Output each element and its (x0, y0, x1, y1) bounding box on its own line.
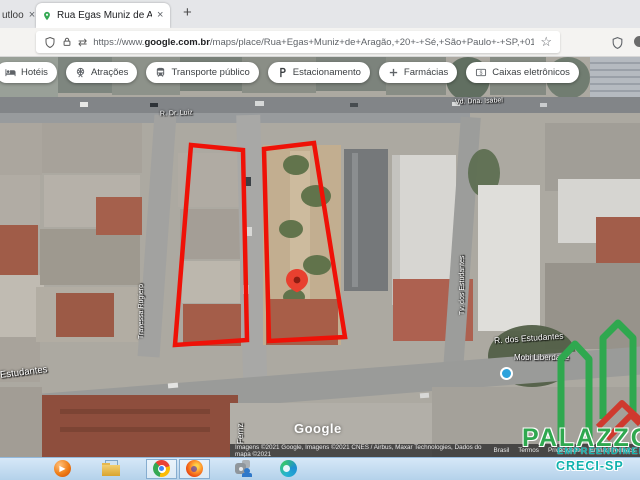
maps-pin-favicon (42, 10, 52, 22)
parking-p-icon (277, 67, 288, 78)
street-label: Travessa Rugiero (138, 243, 145, 339)
chip-pharmacies[interactable]: Farmácias (379, 62, 457, 83)
bookmark-star-icon[interactable]: ☆ (540, 34, 552, 50)
category-chips: Hotéis Atrações Transporte público Estac… (0, 62, 579, 83)
poi-dot[interactable] (500, 367, 513, 380)
ferris-wheel-icon (75, 67, 86, 78)
permissions-icon[interactable]: ⇄ (78, 36, 87, 49)
tab-outlook-partial[interactable]: utloo × (0, 3, 35, 28)
train-icon (155, 67, 166, 78)
bed-icon (5, 67, 16, 78)
close-icon[interactable]: × (157, 10, 163, 21)
map-viewport[interactable]: R. Dr. Luiz Vd. Dna. Isabel Travessa Rug… (0, 57, 640, 457)
tab-maps-active[interactable]: Rua Egas Muniz de Aragão, 20 × (36, 3, 170, 28)
partial-tab-title: utloo (2, 10, 24, 21)
address-toolbar: ⇄ https://www.google.com.br/maps/place/R… (0, 28, 640, 57)
chip-parking[interactable]: Estacionamento (268, 62, 370, 83)
taskbar: ▶ (0, 457, 640, 480)
attribution-text: Imagens ©2021 Google, Imagens ©2021 CNES… (235, 444, 486, 457)
atm-banknote-icon: $ (475, 67, 487, 78)
chip-attractions[interactable]: Atrações (66, 62, 138, 83)
google-watermark: Google (294, 421, 342, 436)
url-text: https://www.google.com.br/maps/place/Rua… (93, 37, 534, 48)
poi-label[interactable]: Mobi Liberdade (514, 353, 569, 362)
street-label: R. Dr. Luiz (160, 109, 193, 117)
new-tab-button[interactable]: + (183, 4, 192, 21)
chip-hotels[interactable]: Hotéis (0, 62, 57, 83)
browser-window: utloo × Rua Egas Muniz de Aragão, 20 × +… (0, 0, 640, 480)
taskbar-icon-media-player[interactable]: ▶ (54, 460, 72, 478)
taskbar-icon-firefox[interactable] (186, 460, 204, 478)
taskbar-icon-chrome[interactable] (153, 460, 171, 478)
street-label: Fernz (236, 398, 245, 444)
taskbar-icon-edge[interactable] (280, 460, 298, 478)
street-label: Tv. dos Estudantes (459, 225, 466, 315)
url-field[interactable]: ⇄ https://www.google.com.br/maps/place/R… (36, 31, 560, 53)
lock-icon[interactable] (62, 36, 72, 48)
tab-bar: utloo × Rua Egas Muniz de Aragão, 20 × + (0, 0, 640, 28)
palazzo-watermark-subtitle: EMPREENDIMENTOS (557, 446, 640, 457)
profile-icon-partial[interactable] (634, 36, 640, 47)
pharmacy-cross-icon (388, 67, 399, 78)
svg-text:$: $ (480, 70, 483, 76)
chip-public-transit[interactable]: Transporte público (146, 62, 258, 83)
palazzo-watermark-creci: CRECI-SP (556, 459, 624, 473)
active-tab-title: Rua Egas Muniz de Aragão, 20 (57, 10, 152, 21)
close-icon[interactable]: × (29, 10, 35, 21)
taskbar-icon-file-explorer[interactable] (102, 460, 120, 478)
attribution-link-brasil[interactable]: Brasil (494, 447, 510, 454)
chip-atms[interactable]: $ Caixas eletrônicos (466, 62, 579, 83)
extension-shield-icon[interactable] (611, 36, 624, 50)
tracking-protection-shield-icon[interactable] (44, 36, 56, 49)
taskbar-icon-system-settings[interactable] (234, 460, 252, 478)
